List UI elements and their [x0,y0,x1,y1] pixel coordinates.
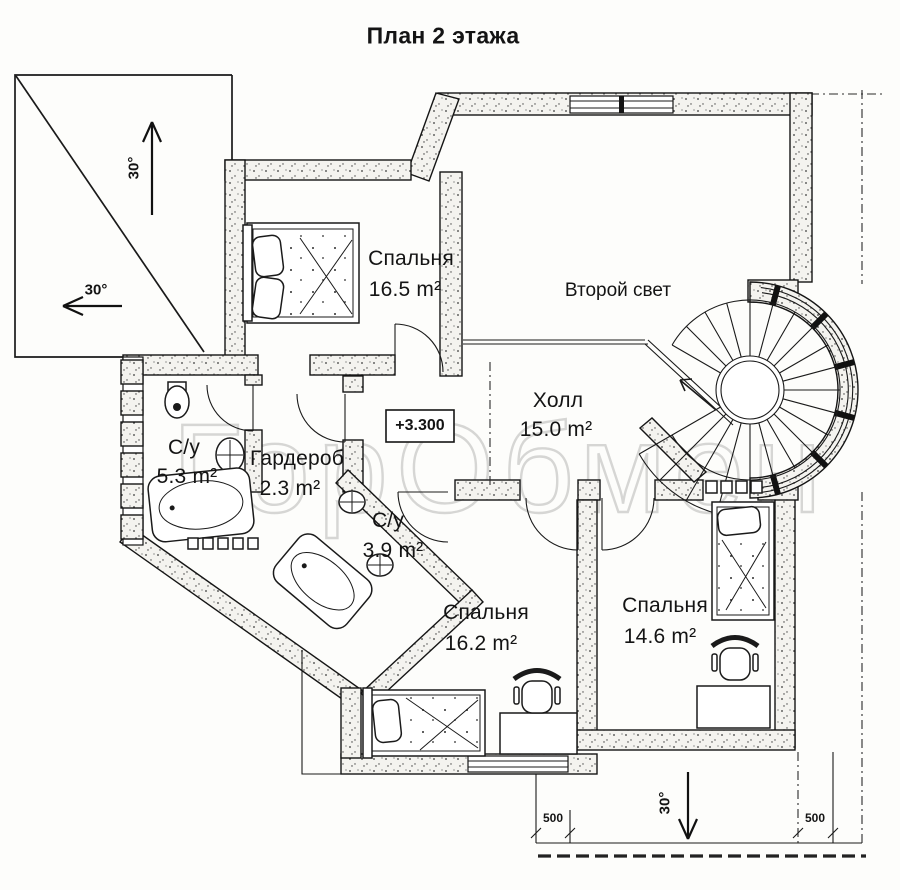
desk [697,686,770,728]
door-bedroom1 [395,324,443,372]
dimension-label-right: 500 [805,811,825,825]
sink [339,491,365,513]
chair [514,671,560,714]
room-label-hall-name: Холл [533,389,583,413]
roof-outline [15,75,232,357]
roof-slope-label-bottom: 30° [657,792,674,815]
room-label-bath53-name: С/у [168,436,200,460]
room-label-bath53-area: 5.3 m² [157,465,218,489]
floor-plan-page: ГорОбмен [0,0,900,890]
room-label-wardrobe-name: Гардероб [250,447,344,471]
dimension-label-left: 500 [543,811,563,825]
floor-plan-drawing: ГорОбмен [0,0,900,890]
room-label-bedroom1-area: 16.5 m² [369,278,442,302]
room-label-bedroom1-name: Спальня [368,247,454,271]
room-label-wardrobe-area: 2.3 m² [260,477,321,501]
page-title: План 2 этажа [367,23,520,50]
room-label-bedroom162-name: Спальня [443,601,529,625]
chair [712,638,758,681]
bedroom1-furniture [243,223,359,323]
room-label-hall-area: 15.0 m² [520,418,593,442]
room-label-bedroom146-area: 14.6 m² [624,625,697,649]
glass-block-wall [121,357,143,545]
desk [500,713,577,754]
room-label-bath39-name: С/у [372,509,404,533]
roof-slope-arrow-down [679,772,697,839]
radiator [188,538,258,549]
roof-slope-arrow-up [143,122,161,215]
window-top [570,96,673,113]
roof-slope-arrow-left [63,297,122,315]
elevation-label: +3.300 [395,417,444,435]
window-bottom [468,756,568,772]
room-label-bath39-area: 3.9 m² [363,539,424,563]
sink [216,438,244,472]
room-label-void: Второй свет [565,280,671,302]
toilet [165,382,189,418]
roof-slope-label-left: 30° [85,282,108,299]
room-label-bedroom162-area: 16.2 m² [445,632,518,656]
bathtub [268,529,377,634]
roof-slope-label-top: 30° [126,157,143,180]
room-label-bedroom146-name: Спальня [622,594,708,618]
